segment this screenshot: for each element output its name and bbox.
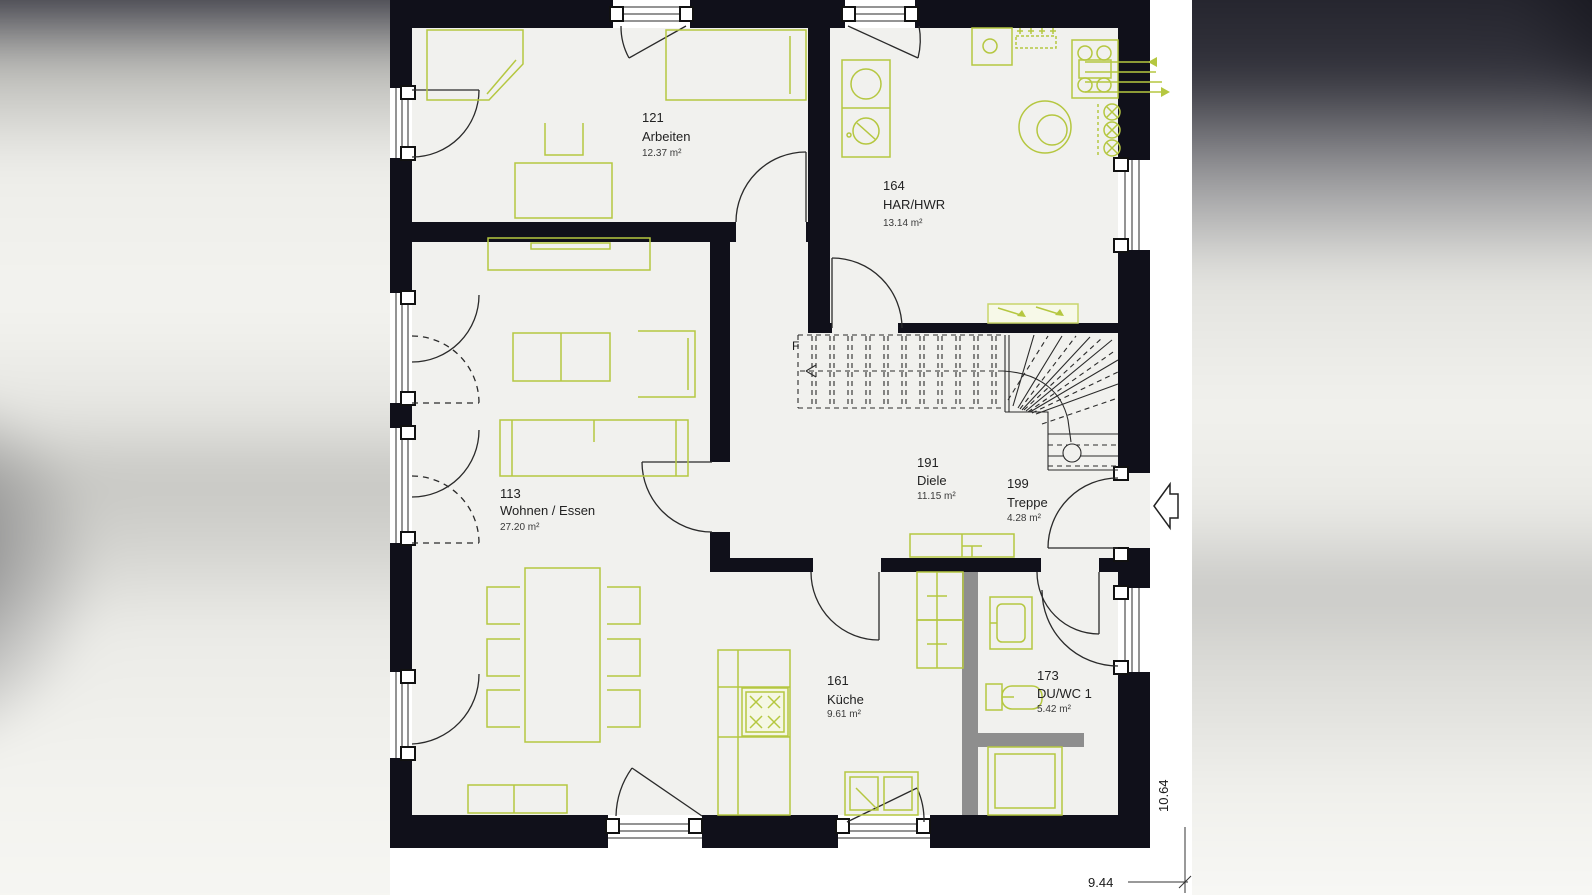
room-113-name: Wohnen / Essen [500, 503, 595, 518]
window-left-wohnen-3 [390, 670, 415, 760]
room-113-number: 113 [500, 486, 521, 501]
terrace-door [606, 817, 702, 845]
cooktop [742, 688, 788, 736]
window-left-wohnen-1 [390, 291, 415, 405]
room-199-area: 4.28 m² [1007, 513, 1042, 524]
room-161-area: 9.61 m² [827, 709, 862, 720]
floor-plan: F [0, 0, 1592, 895]
room-191-number: 191 [917, 455, 939, 470]
window-left-arbeiten [390, 86, 415, 160]
entrance-door-opening [1114, 467, 1150, 561]
meter-box [988, 304, 1078, 323]
room-191-area: 11.15 m² [917, 491, 956, 502]
room-164-number: 164 [883, 178, 905, 193]
room-191-name: Diele [917, 473, 947, 488]
room-121-number: 121 [642, 110, 664, 125]
room-121-name: Arbeiten [642, 129, 690, 144]
dimension-bottom: 9.44 [1088, 875, 1113, 890]
room-199-number: 199 [1007, 476, 1029, 491]
room-121-area: 12.37 m² [642, 148, 682, 159]
room-164-name: HAR/HWR [883, 197, 945, 212]
window-top-arbeiten [610, 0, 693, 28]
stair-label-f: F [792, 339, 799, 353]
entrance-arrow-icon [1154, 484, 1178, 528]
room-199-name: Treppe [1007, 495, 1048, 510]
room-164-area: 13.14 m² [883, 218, 923, 229]
room-173-area: 5.42 m² [1037, 704, 1072, 715]
room-161-name: Küche [827, 692, 864, 707]
room-113-area: 27.20 m² [500, 522, 540, 533]
room-173-number: 173 [1037, 668, 1059, 683]
screenshot-root: F [0, 0, 1592, 895]
room-173-name: DU/WC 1 [1037, 686, 1092, 701]
window-top-hwr [842, 0, 918, 28]
window-left-wohnen-2 [390, 426, 415, 545]
window-right-wc [1114, 586, 1150, 674]
dimension-right: 10.64 [1156, 779, 1171, 812]
room-161-number: 161 [827, 673, 849, 688]
window-right-hwr [1114, 158, 1150, 252]
